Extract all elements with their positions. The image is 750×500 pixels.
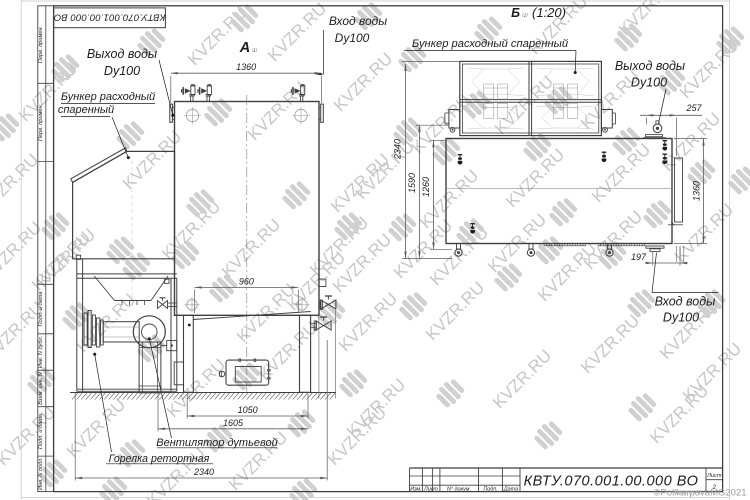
svg-text:257: 257 [685,103,702,113]
svg-text:Лист: Лист [706,473,722,479]
svg-text:Подп. и дата: Подп. и дата [38,291,44,326]
svg-text:Бункер расходный: Бункер расходный [61,91,155,103]
svg-text:Б: Б [511,6,520,20]
svg-text:Инв. N подл.: Инв. N подл. [38,457,44,490]
svg-text:Дата: Дата [503,487,518,493]
svg-text:Вентилятор дутьевой: Вентилятор дутьевой [156,437,277,449]
svg-text:Выход воды: Выход воды [615,59,685,73]
svg-text:Подп.: Подп. [483,487,497,493]
svg-text:Изм.: Изм. [410,487,422,493]
svg-text:Dy100: Dy100 [663,311,699,325]
svg-text:Подп. и дата: Подп. и дата [38,414,44,449]
svg-text:1360: 1360 [236,62,256,72]
svg-text:Вход воды: Вход воды [329,14,387,28]
svg-text:КВТУ.070.001.00.000 ВО: КВТУ.070.001.00.000 ВО [53,12,165,23]
svg-text:спаренный: спаренный [58,104,114,116]
svg-text:(1:20): (1:20) [532,5,566,20]
svg-text:1590: 1590 [407,173,417,193]
svg-text:Перв. примен.: Перв. примен. [38,104,44,141]
svg-text:Dy100: Dy100 [631,76,667,90]
svg-text:Инв. N дубл.: Инв. N дубл. [38,336,44,368]
svg-text:Dy100: Dy100 [335,31,370,45]
svg-text:197: 197 [631,252,647,262]
svg-text:1605: 1605 [223,418,244,428]
svg-text:N° докум.: N° докум. [447,487,471,493]
svg-text:Взам. инв. N: Взам. инв. N [38,371,44,405]
svg-text:Выход воды: Выход воды [87,47,157,61]
svg-text:2340: 2340 [393,139,403,160]
svg-text:Вход воды: Вход воды [655,295,716,309]
svg-text:Формат А3: Формат А3 [674,490,702,496]
svg-text:Лист: Лист [423,487,438,493]
svg-text:А: А [239,40,250,56]
svg-text:Dy100: Dy100 [104,64,140,78]
svg-text:1260: 1260 [421,177,431,197]
svg-text:Бункер расходный спаренный: Бункер расходный спаренный [412,38,568,50]
svg-text:Горелка ретортная: Горелка ретортная [109,453,210,465]
svg-text:Перв. примен.: Перв. примен. [38,26,44,63]
svg-text:1360: 1360 [692,181,702,201]
svg-text:960: 960 [239,276,254,286]
svg-text:1050: 1050 [238,405,258,415]
svg-text:2340: 2340 [193,467,214,477]
